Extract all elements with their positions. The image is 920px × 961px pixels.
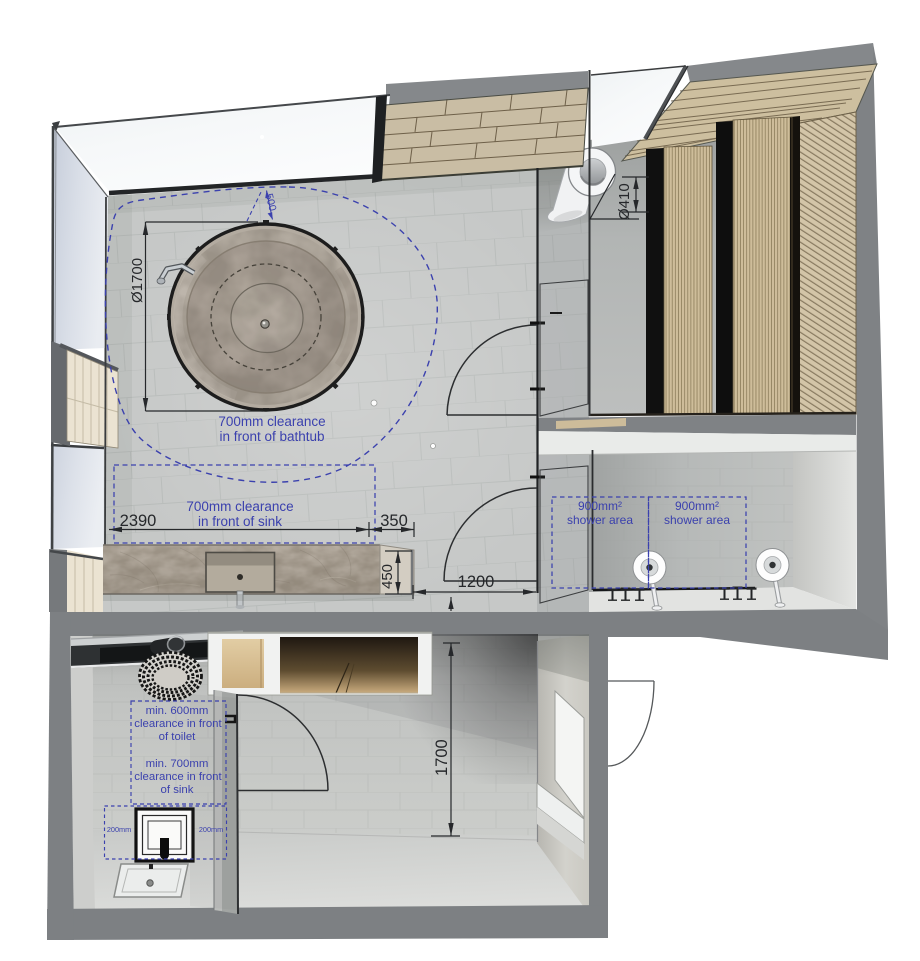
svg-text:Ø1700: Ø1700: [129, 258, 146, 303]
svg-text:700mm clearance: 700mm clearance: [218, 414, 325, 429]
svg-text:1700: 1700: [433, 739, 451, 776]
svg-text:200mm: 200mm: [199, 825, 223, 834]
svg-text:350: 350: [380, 512, 408, 530]
svg-text:200mm: 200mm: [107, 825, 131, 834]
svg-text:clearance in front: clearance in front: [134, 718, 222, 730]
svg-text:900mm²: 900mm²: [578, 499, 622, 513]
svg-text:450: 450: [379, 564, 396, 589]
svg-text:700mm clearance: 700mm clearance: [186, 499, 293, 514]
svg-text:min. 600mm: min. 600mm: [146, 705, 209, 717]
svg-text:of sink: of sink: [161, 784, 194, 796]
svg-text:in front of sink: in front of sink: [198, 514, 282, 529]
svg-text:Ø410: Ø410: [616, 183, 633, 220]
svg-text:min. 700mm: min. 700mm: [146, 758, 209, 770]
svg-text:900mm²: 900mm²: [675, 499, 719, 513]
svg-text:clearance in front: clearance in front: [134, 771, 222, 783]
svg-text:shower area: shower area: [567, 513, 633, 527]
svg-text:shower area: shower area: [664, 513, 730, 527]
svg-text:1200: 1200: [458, 573, 495, 591]
svg-text:2390: 2390: [120, 512, 157, 530]
svg-text:in front of bathtub: in front of bathtub: [219, 429, 324, 444]
svg-text:of toilet: of toilet: [159, 731, 197, 743]
